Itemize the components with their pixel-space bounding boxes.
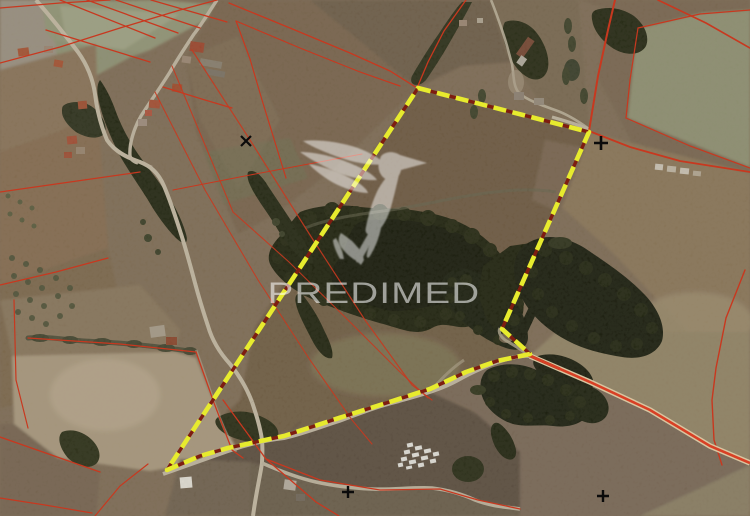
svg-text:PREDIMED: PREDIMED [268,277,481,310]
